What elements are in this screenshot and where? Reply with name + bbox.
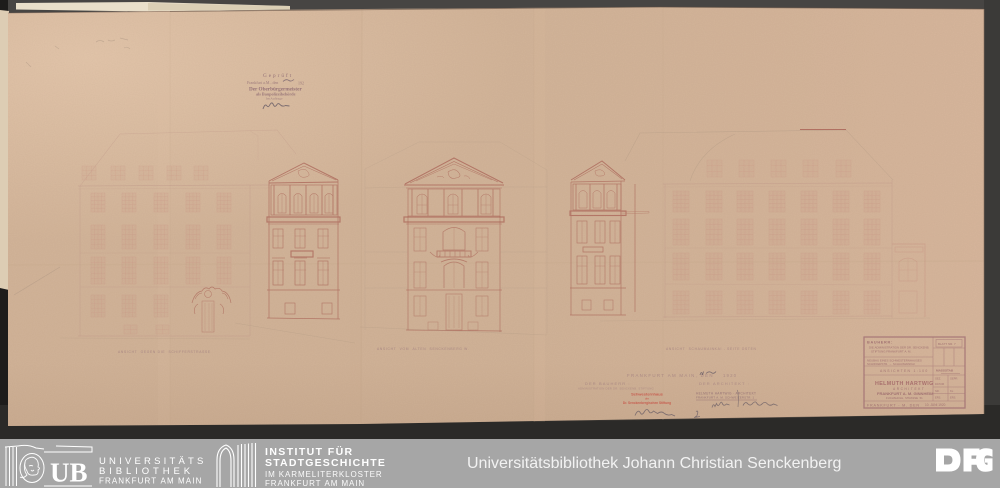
svg-text:STIFTUNG FRANKFURT A. M.: STIFTUNG FRANKFURT A. M. <box>871 350 911 354</box>
svg-text:MASSSTAB: MASSSTAB <box>936 369 954 373</box>
svg-text:BIBLIOTHEK: BIBLIOTHEK <box>99 466 194 477</box>
svg-text:ERS.: ERS. <box>950 396 956 400</box>
svg-text:NR.: NR. <box>935 389 940 393</box>
svg-text:Dr. Senckenbergischen Stiftung: Dr. Senckenbergischen Stiftung <box>623 401 671 405</box>
svg-text:UB: UB <box>50 458 88 488</box>
svg-text:KL.: KL. <box>950 389 954 393</box>
svg-text:FRANKFURT AM MAIN: FRANKFURT AM MAIN <box>265 479 365 488</box>
svg-text:1920: 1920 <box>723 373 737 378</box>
svg-text:Im Auftrage: Im Auftrage <box>266 97 283 101</box>
svg-text:der: der <box>645 397 649 401</box>
svg-text:ANSICHT VOM ALTEN SENCKENBE: ANSICHT VOM ALTEN SENCKENBERG W. <box>377 347 469 351</box>
svg-text:FRANKFURT A. M. SCHWEIZERSTR.: FRANKFURT A. M. SCHWEIZERSTR. 1 <box>696 396 755 400</box>
svg-text:Universitätsbibliothek Johann: Universitätsbibliothek Johann Christian … <box>467 455 841 472</box>
svg-text:Geprüft: Geprüft <box>263 72 293 79</box>
svg-text:ANSICHTEN 1:100: ANSICHTEN 1:100 <box>880 369 929 373</box>
svg-text:ANSICHT GEGEN DIE SCHIFFERST: ANSICHT GEGEN DIE SCHIFFERSTRASSE <box>118 350 211 354</box>
svg-text:ADMINISTRATION DER DR. SENCKEN: ADMINISTRATION DER DR. SENCKENB. STIFTUN… <box>578 387 654 391</box>
svg-text:GEPR.: GEPR. <box>950 377 958 381</box>
svg-text:ERS.: ERS. <box>935 396 941 400</box>
svg-text:BAUHERR:: BAUHERR: <box>867 341 893 345</box>
svg-text:FRANKFURT - M. DEN: FRANKFURT - M. DEN <box>867 403 920 407</box>
svg-text:GEZ.: GEZ. <box>935 377 941 381</box>
svg-text:ANSICHT SCHAUMAINKAI - SEITE: ANSICHT SCHAUMAINKAI - SEITE OSTEN <box>666 347 757 351</box>
svg-text:SCHIFFERSTR. – SCHAUMAINKAI: SCHIFFERSTR. – SCHAUMAINKAI <box>867 362 915 366</box>
svg-text:BLATT NR. 7: BLATT NR. 7 <box>938 342 956 346</box>
svg-text:IM KARMELITERKLOSTER: IM KARMELITERKLOSTER <box>265 470 383 479</box>
svg-text:192: 192 <box>298 81 304 86</box>
svg-text:Schwesternhaus: Schwesternhaus <box>631 392 664 397</box>
svg-text:10. JUNI 1920: 10. JUNI 1920 <box>925 403 946 407</box>
svg-text:DATUM: DATUM <box>935 382 944 386</box>
svg-text:STADTGESCHICHTE: STADTGESCHICHTE <box>265 457 386 469</box>
svg-text:DER ARCHITEKT :: DER ARCHITEKT : <box>699 381 750 386</box>
svg-text:DER BAUHERR :: DER BAUHERR : <box>585 381 631 386</box>
svg-text:FUCHSHOHL STRASSE 51: FUCHSHOHL STRASSE 51 <box>886 396 923 400</box>
svg-text:FRANKFURT AM MAIN: FRANKFURT AM MAIN <box>99 477 202 486</box>
